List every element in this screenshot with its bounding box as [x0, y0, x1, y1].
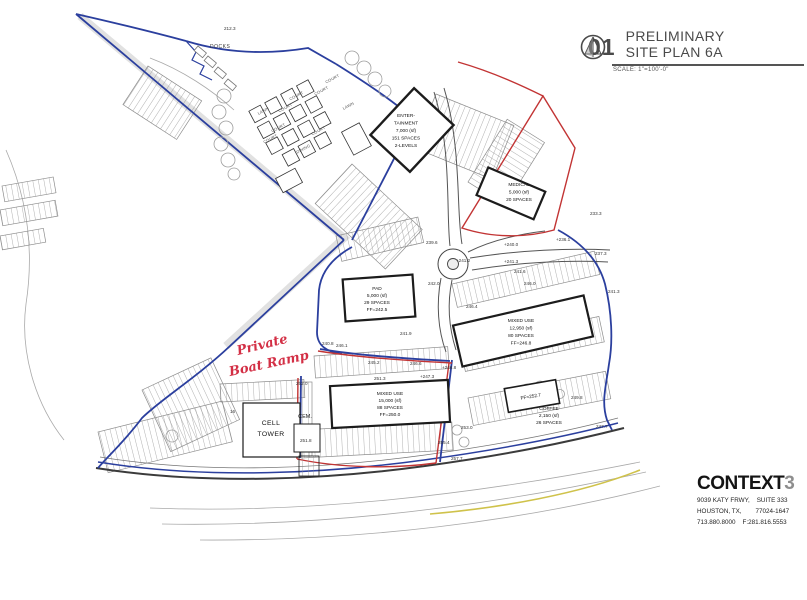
sheet-title: PRELIMINARY SITE PLAN 6A	[626, 29, 725, 60]
spot-elevation: +236.1	[556, 237, 571, 242]
background-roads	[6, 58, 660, 540]
cemetery-label: CEM.	[298, 414, 312, 420]
site-plan-drawing: 212.3DOCKS233.3+236.1237.3241.3239.6+240…	[0, 0, 807, 600]
spot-elevation: 242.0	[428, 281, 440, 286]
sheet-scale: SCALE: 1"=100'-0"	[613, 67, 806, 73]
spot-elevation: 241.3	[608, 289, 620, 294]
spot-elevation: 241.9	[400, 331, 412, 336]
spot-elevation: 257.7	[451, 456, 463, 461]
title-block: 01 PRELIMINARY SITE PLAN 6A SCALE: 1"=10…	[580, 28, 806, 73]
firm-address-line3: 713.880.8000 F:281.816.5553	[697, 518, 794, 527]
cemetery-hatch	[299, 456, 319, 476]
sheet-title-line1: PRELIMINARY	[626, 29, 725, 45]
mixed-use-south-building	[330, 380, 450, 428]
spot-elevation: 251.3	[374, 376, 386, 381]
spot-elevation: +246.8	[442, 365, 457, 370]
spot-elevation: 252.0	[296, 381, 308, 386]
spot-elevation: 239.6	[426, 240, 438, 245]
court-label: COURT	[324, 73, 340, 85]
parking-count: 16	[230, 409, 236, 414]
firm-address-line2: HOUSTON, TX, 77024-1647	[697, 507, 794, 516]
cell-tower-building	[243, 403, 300, 457]
spot-elevation: 241.6	[514, 269, 526, 274]
firm-address-line1: 9039 KATY FRWY, SUITE 333	[697, 496, 794, 505]
firm-name-text: CONTEXT	[697, 473, 784, 494]
north-arrow-icon	[580, 34, 606, 60]
spot-elevation: 246.1	[336, 343, 348, 348]
spot-elevation: 246.4	[466, 304, 478, 309]
spot-elevation: 251.8	[300, 438, 312, 443]
spot-elevation: 233.3	[590, 211, 602, 216]
site-plan-page: 212.3DOCKS233.3+236.1237.3241.3239.6+240…	[0, 0, 807, 600]
spot-elevation: +241.2	[456, 258, 471, 263]
firm-block: CONTEXT3 9039 KATY FRWY, SUITE 333 HOUST…	[697, 474, 794, 527]
spot-elevation: 237.3	[595, 251, 607, 256]
spot-elevation: +240.0	[504, 242, 519, 247]
roundabout	[438, 249, 468, 279]
spot-elevation: 249.8	[571, 395, 583, 400]
court-label: COURT	[313, 85, 329, 97]
spot-elevation: +247.3	[420, 374, 435, 379]
medical-label: MEDICAL5,000 (sf)20 SPACES	[506, 182, 532, 203]
coffee-label: COFFEE2,150 (sf)26 SPACES	[536, 406, 562, 426]
sheet-title-line2: SITE PLAN 6A	[626, 45, 725, 61]
spot-elevation: 240.8	[322, 341, 334, 346]
spot-elevation: 255.4	[438, 440, 450, 445]
title-rule	[612, 64, 804, 66]
spot-elevation: 253.0	[461, 425, 473, 430]
spot-elevation: 246.6	[410, 361, 422, 366]
spot-elevation: 245.2	[368, 360, 380, 365]
spot-elevation: 212.3	[224, 26, 236, 31]
docks-label: DOCKS	[210, 44, 230, 50]
spot-elevation: 247.7	[596, 424, 608, 429]
lawn-label: LAWN	[342, 101, 355, 111]
spot-elevation: 246.0	[524, 281, 536, 286]
firm-logo: CONTEXT3	[697, 474, 794, 494]
firm-name-digit: 3	[784, 473, 794, 494]
spot-elevation: +241.3	[504, 259, 519, 264]
